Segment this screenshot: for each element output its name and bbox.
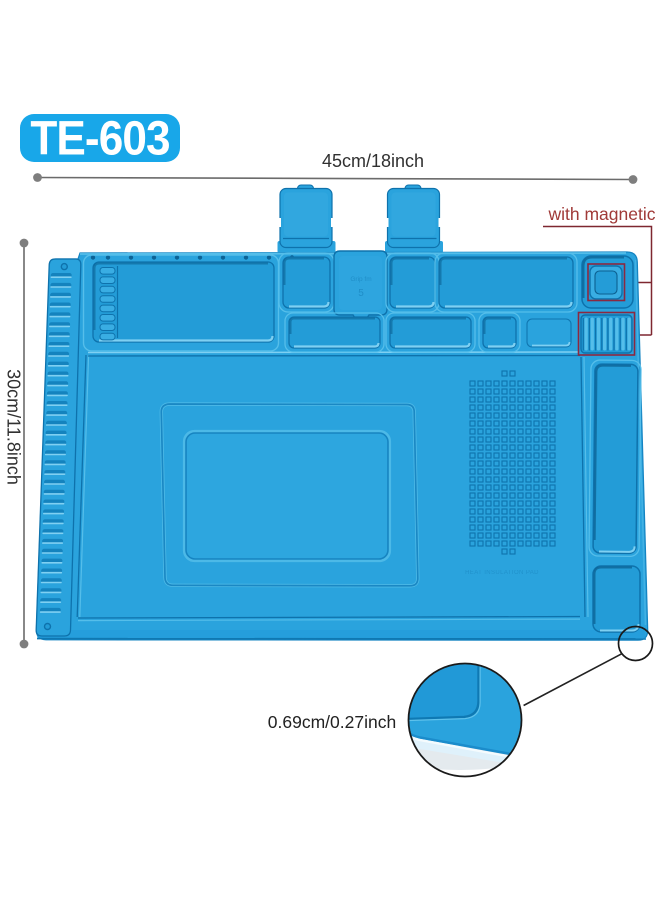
svg-text:HEAT INSULATION PAD: HEAT INSULATION PAD bbox=[465, 570, 539, 576]
svg-text:Grip fm: Grip fm bbox=[350, 276, 371, 283]
svg-text:TE-603: TE-603 bbox=[30, 111, 169, 165]
svg-text:30cm/11.8inch: 30cm/11.8inch bbox=[4, 369, 24, 485]
svg-text:45cm/18inch: 45cm/18inch bbox=[322, 151, 424, 171]
svg-text:0.69cm/0.27inch: 0.69cm/0.27inch bbox=[268, 712, 396, 732]
svg-text:with magnetic: with magnetic bbox=[548, 204, 656, 224]
svg-text:5: 5 bbox=[358, 288, 364, 299]
